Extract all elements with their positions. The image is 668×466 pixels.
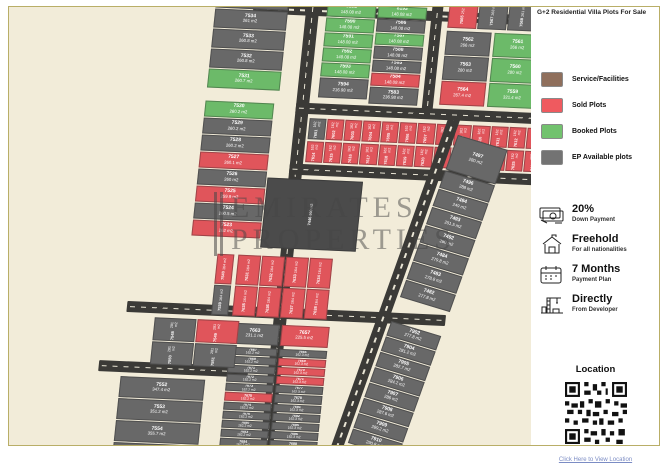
plot-tile: 7612162 m2 (508, 126, 527, 148)
plot-tile: 7534261 m2 (213, 8, 288, 30)
plot-tile: 8192148.08 m2 (326, 6, 376, 18)
plot-area: 355.7 m2 (147, 432, 165, 438)
plot-tile: 7634164 m2 (306, 257, 332, 288)
plot-tile: 7527260.1 m2 (198, 151, 268, 170)
plot-tile: 7602162 m2 (325, 118, 344, 140)
plot-tile: 7559321.4 m2 (486, 82, 531, 108)
plot-area: 164 m2 (222, 258, 227, 270)
plan-canvas: 7535261 m27534261 m27533260.8 m27532260.… (8, 6, 531, 446)
plot-area: 260.2 m2 (229, 110, 247, 116)
plot-area: 164 m2 (246, 259, 251, 271)
plot-tile: 7523262 m2 (191, 219, 261, 238)
plot-tile: 7563280 m2 (441, 55, 488, 81)
plot-area: 260 m2 (224, 178, 239, 184)
available-color-swatch (541, 150, 563, 165)
plot-tile: 7562266 m2 (444, 30, 491, 56)
plot-number: 7567 (489, 17, 495, 26)
plot-area: 148.08 m2 (391, 12, 412, 18)
plot-tile: 7533260.8 m2 (211, 28, 286, 50)
legend-label: Sold Plots (572, 102, 606, 109)
plot-tile: 7568261 m2 (507, 6, 531, 31)
plot-area: 162.3 m2 (294, 363, 308, 367)
feature-down-payment: 20% Down Payment (539, 204, 627, 225)
qr-code (565, 382, 627, 444)
plot-tile: 7553351.2 m2 (116, 398, 203, 423)
plot-number: 7619 (402, 156, 408, 165)
plot-area: 321.4 m2 (503, 95, 521, 101)
plot-tile: 7617162 m2 (359, 143, 378, 165)
legend-item-sold: Sold Plots (541, 98, 632, 113)
plot-area: 162 m2 (365, 144, 374, 153)
plot-area: 260.2 m2 (226, 144, 244, 150)
plot-area: 216.98 m2 (332, 88, 353, 94)
plot-tile: 7584148.08 m2 (370, 73, 420, 88)
plot-area: 148.08 m2 (334, 70, 355, 76)
plot-tile: 7615162 m2 (323, 141, 342, 163)
plot-area: 162 m2 (347, 143, 356, 152)
plot-number: 7540 (220, 271, 226, 280)
plot-area: 164 m2 (242, 290, 247, 302)
plot-area: 162 m2 (313, 119, 322, 128)
plot-number: 7603 (350, 131, 356, 140)
plot-tile: 7607162 m2 (416, 122, 435, 144)
plot-area: 162 m2 (386, 122, 395, 131)
plot-tile: 7590148.08 m2 (324, 17, 374, 33)
service-color-swatch (541, 72, 563, 87)
plot-tile: 7552347.4 m2 (118, 376, 205, 401)
plot-area: 162 m2 (404, 123, 413, 132)
plot-number: 7607 (423, 134, 429, 143)
plot-area: 162 m2 (420, 147, 429, 156)
feature-subtitle: Payment Plan (572, 277, 620, 283)
booked-color-swatch (541, 124, 563, 139)
plot-number: 7551 (211, 357, 217, 366)
plot-area: 266 m2 (510, 45, 525, 51)
page: { "header": {"title": "G+2 Residential V… (0, 0, 668, 452)
plot-area: 280 m2 (457, 68, 472, 74)
plot-area: 260.1 m2 (224, 161, 242, 167)
plot-area: 148.08 m2 (388, 39, 409, 45)
plot-tile: 7688162.3 m2 (269, 440, 318, 446)
plot-area: 162.3 m2 (291, 390, 305, 394)
plot-area: 162 m2 (329, 143, 338, 152)
plot-tile: 7525259.9 m2 (195, 185, 265, 204)
plot-tile: 7539164 m2 (211, 284, 231, 315)
feature-title: 20% (572, 204, 615, 215)
plot-area: 162.3 m2 (288, 427, 302, 431)
plot-tile: 7619162 m2 (396, 145, 415, 167)
plot-tile: 7603162 m2 (344, 119, 363, 141)
plot-area: 280 m2 (507, 70, 522, 76)
plot-tile: 7594216.98 m2 (317, 77, 368, 99)
plot-area: 281 m2 (213, 320, 222, 331)
calendar-icon (539, 264, 565, 285)
plot-area: 162.3 m2 (290, 399, 304, 403)
plot-area: 162 m2 (511, 151, 520, 160)
plot-number: 7631 (244, 272, 250, 281)
plot-area: 162 m2 (367, 121, 376, 130)
plot-tile: 7591148.08 m2 (323, 32, 373, 48)
plot-area: 236.98 m2 (382, 96, 403, 102)
plot-area: 162 m2 (459, 125, 468, 134)
plot-area: 162.2 m2 (239, 415, 253, 419)
plot-tile: 7528260.2 m2 (200, 134, 270, 153)
plot-area: 162.2 m2 (245, 351, 259, 355)
plot-number: 7637 (289, 305, 295, 314)
plot-tile: 7684162.2 m2 (219, 438, 268, 446)
plot-area: 281 m2 (210, 344, 219, 355)
feature-subtitle: Down Payment (572, 217, 615, 223)
plot-number: 7446 (308, 216, 314, 225)
plot-tile: 7593148.08 m2 (320, 62, 370, 78)
plot-area: 164 m2 (317, 262, 322, 274)
plot-area: 162 m2 (401, 146, 410, 155)
plot-tile: 7531260.7 m2 (206, 68, 281, 90)
plot-number: 7625 (512, 161, 518, 170)
plot-block-topmid-right: 8190341.98 m28193148.08 m27586148.08 m27… (367, 6, 429, 106)
feature-text: 7 Months Payment Plan (572, 264, 620, 283)
location-link[interactable]: Click Here to View Location (559, 457, 632, 463)
plot-tile: 7585148.08 m2 (371, 59, 421, 74)
plot-area: 260.8 m2 (236, 59, 254, 65)
plot-area: 351.2 m2 (150, 410, 168, 416)
plot-area: 148.08 m2 (385, 66, 406, 72)
plot-tile: 8193148.08 m2 (377, 6, 427, 20)
plot-area: 164 m2 (266, 291, 271, 303)
plot-tile: 7548281 m2 (152, 317, 196, 342)
plot-tile: 7554355.7 m2 (113, 420, 200, 445)
plot-tile: 7524260.5 m2 (193, 202, 263, 221)
plot-area: 164 m2 (218, 289, 223, 301)
plot-number: 7601 (314, 129, 320, 138)
plot-area: 260.7 m2 (234, 79, 252, 85)
plot-area: 162 m2 (331, 120, 340, 129)
plot-area: 162.2 m2 (244, 360, 258, 364)
plot-number: 7606 (405, 133, 411, 142)
plot-block-topright-left: 7562266 m27563280 m27564267.4 m2 (438, 30, 492, 107)
plot-tile: 7605162 m2 (380, 121, 399, 143)
plot-block-sold-grid: 7631164 m27632164 m27633164 m27634164 m2… (231, 254, 339, 320)
plot-area: 259.9 m2 (220, 195, 238, 201)
plot-area: 162.2 m2 (243, 379, 257, 383)
plot-block-bottomleft-column: 7552347.4 m27553351.2 m27554355.7 m27555… (110, 375, 205, 446)
feature-text: Directly From Developer (572, 294, 618, 313)
plot-tile: 7601162 m2 (307, 118, 326, 140)
plot-block-midlow-right: 7657225.5 m2 (279, 324, 330, 348)
plot-block-topright-row: 7565252 m27567263 m27568261 m2 (446, 6, 531, 32)
plot-tile: 7583236.98 m2 (368, 86, 419, 105)
feature-subtitle: For all nationalities (572, 247, 627, 253)
plot-area: 990 m2 (309, 203, 314, 215)
feature-freehold: Freehold For all nationalities (539, 234, 627, 255)
site-plan-map: 7535261 m27534261 m27533260.8 m27532260.… (8, 6, 531, 446)
plot-area: 266 m2 (460, 43, 475, 49)
plot-block-dense-right: 7666162.3 m27669162.3 m27670162.3 m27671… (267, 348, 327, 446)
plot-area: 148.08 m2 (340, 10, 361, 16)
plot-tile: 7637164 m2 (279, 287, 305, 318)
plot-number: 7620 (420, 157, 426, 166)
feature-title: Directly (572, 294, 618, 305)
plot-area: 162 m2 (422, 124, 431, 133)
crane-icon (539, 294, 565, 315)
location-title: Location (531, 364, 660, 375)
plot-number: 7539 (217, 302, 223, 311)
plot-tile: 7549281 m2 (195, 319, 239, 344)
plot-tile: 7587148.08 m2 (374, 32, 424, 47)
plot-number: 7550 (168, 355, 174, 364)
legend-label: EP Available plots (572, 154, 632, 161)
plot-area: 162.3 m2 (289, 408, 303, 412)
plot-area: 260.2 m2 (227, 127, 245, 133)
plot-area: 252 m2 (461, 6, 466, 14)
plot-number: 7612 (514, 138, 520, 147)
plot-area: 162 m2 (349, 120, 358, 129)
plot-tile: 7529260.2 m2 (202, 117, 272, 136)
plot-number: 7604 (368, 131, 374, 140)
plot-area: 148.08 m2 (337, 40, 358, 46)
feature-list: 20% Down Payment Freehold For all nation… (539, 204, 627, 324)
plot-tile: 7551281 m2 (192, 343, 236, 368)
plot-area: 347.4 m2 (152, 388, 170, 394)
plot-block-topright-right: 7561266 m27560280 m27559321.4 m2 (486, 32, 531, 109)
plot-tile: 7632164 m2 (259, 255, 285, 286)
plot-tile: 7567263 m2 (477, 6, 509, 30)
plot-tile: 7586148.08 m2 (375, 19, 425, 34)
plot-tile: 7657225.5 m2 (279, 324, 329, 347)
brochure-page: 7535261 m27534261 m27533260.8 m27532260.… (0, 0, 668, 452)
plot-area: 164 m2 (293, 261, 298, 273)
plot-block-bottomleft-grid: 7548281 m27549281 m27550281 m27551281 m2 (149, 316, 244, 368)
plot-area: 262 m2 (218, 229, 233, 235)
plot-area: 225.5 m2 (295, 336, 313, 342)
feature-title: 7 Months (572, 264, 620, 275)
plot-tile: 7606162 m2 (398, 122, 417, 144)
plot-tile: 7638164 m2 (303, 288, 329, 319)
plot-area: 267.4 m2 (453, 93, 471, 99)
legend: Service/Facilities Sold Plots Booked Plo… (541, 72, 632, 176)
plot-number: 7616 (348, 154, 354, 163)
plot-number: 7633 (292, 274, 298, 283)
plot-tile: 7636164 m2 (255, 286, 281, 317)
feature-subtitle: From Developer (572, 307, 618, 313)
plot-number: 7549 (213, 333, 219, 342)
legend-label: Service/Facilities (572, 76, 629, 83)
plot-number: 7632 (268, 273, 274, 282)
plot-area: 162.3 m2 (286, 445, 300, 446)
feature-developer: Directly From Developer (539, 294, 627, 315)
house-icon (539, 234, 565, 255)
plot-area: 260.8 m2 (239, 39, 257, 45)
plot-area: 148.08 m2 (390, 26, 411, 32)
plot-area: 148.08 m2 (387, 53, 408, 59)
plot-area: 162 m2 (495, 127, 504, 137)
plot-area: 162.3 m2 (287, 436, 301, 440)
plot-tile: 7561266 m2 (492, 32, 531, 58)
feature-text: Freehold For all nationalities (572, 234, 627, 253)
plot-number: 7636 (265, 304, 271, 313)
plot-tile: 7564267.4 m2 (439, 80, 486, 106)
plot-area: 148.08 m2 (336, 55, 357, 61)
plot-area: 162.2 m2 (244, 370, 258, 374)
plot-tile: 7446990 m2 (260, 177, 363, 251)
plot-area: 162.3 m2 (295, 353, 309, 357)
plot-tile: 7633164 m2 (283, 256, 309, 287)
plot-area: 162.2 m2 (236, 443, 250, 446)
legend-item-booked: Booked Plots (541, 124, 632, 139)
plot-tile: 7565252 m2 (447, 6, 479, 28)
plot-area: 162.3 m2 (288, 418, 302, 422)
plot-area: 231.1 m2 (245, 334, 263, 340)
feature-payment-plan: 7 Months Payment Plan (539, 264, 627, 285)
plot-tile: 7616162 m2 (341, 142, 360, 164)
plot-tile: 7626162 m2 (523, 150, 531, 172)
plot-area: 164 m2 (314, 293, 319, 305)
plot-block-service-large: 7446990 m2 (259, 177, 362, 251)
plot-tile: 7635164 m2 (232, 285, 258, 316)
plot-area: 164 m2 (270, 260, 275, 272)
plot-area: 281 m2 (167, 342, 176, 353)
plot-area: 162.3 m2 (293, 372, 307, 376)
plot-number: 7602 (332, 130, 338, 139)
plot-area: 162.2 m2 (241, 397, 255, 401)
plot-area: 148.08 m2 (384, 80, 405, 86)
plot-number: 7638 (313, 306, 319, 315)
plot-tile: 7618162 m2 (378, 144, 397, 166)
plot-tile: 7631164 m2 (235, 254, 261, 285)
plot-number: 7617 (366, 154, 372, 163)
legend-label: Booked Plots (572, 128, 617, 135)
legend-item-service: Service/Facilities (541, 72, 632, 87)
plot-area: 162 m2 (383, 145, 392, 154)
legend-item-available: EP Available plots (541, 150, 632, 165)
plot-number: 7614 (311, 152, 317, 161)
feature-title: Freehold (572, 234, 627, 245)
plot-area: 162.2 m2 (237, 434, 251, 438)
plot-tile: 7592148.08 m2 (321, 47, 371, 63)
page-title: G+2 Residential Villa Plots For Sale (531, 6, 660, 16)
plot-number: 7548 (171, 331, 177, 340)
location-section: Location (531, 364, 660, 466)
plot-area: 162 m2 (513, 128, 522, 137)
plot-tile: 7526260 m2 (196, 168, 266, 187)
plot-tile: 7532260.8 m2 (209, 48, 284, 70)
plot-number: 7634 (316, 275, 322, 284)
feature-text: 20% Down Payment (572, 204, 615, 223)
banknote-icon (539, 204, 565, 225)
plot-area: 162 m2 (477, 126, 486, 135)
plot-number: 7565 (459, 15, 465, 24)
plot-number: 7615 (329, 153, 335, 162)
plot-area: 260.5 m2 (218, 212, 236, 218)
plot-tile: 7588148.08 m2 (373, 46, 423, 61)
plot-area: 162 m2 (310, 142, 319, 151)
plot-tile: 7530260.2 m2 (203, 100, 273, 119)
sold-color-swatch (541, 98, 563, 113)
plot-tile: 7604162 m2 (362, 120, 381, 142)
plot-number: 7605 (386, 132, 392, 141)
plot-tile: 7614162 m2 (305, 141, 324, 163)
plot-number: 7635 (241, 303, 247, 312)
plot-number: 7568 (519, 18, 525, 27)
plot-tile: 7550281 m2 (149, 341, 193, 366)
plot-area: 162.3 m2 (292, 381, 306, 385)
plot-area: 263 m2 (490, 6, 495, 16)
plot-tile: 7540164 m2 (214, 253, 234, 284)
plot-area: 162.2 m2 (242, 388, 256, 392)
plot-area: 162.2 m2 (238, 425, 252, 429)
plot-area: 261 m2 (242, 19, 257, 25)
plot-tile: 7560280 m2 (489, 57, 531, 83)
plot-tile: 7625162 m2 (505, 149, 524, 171)
plot-area: 261 m2 (520, 6, 525, 17)
plot-area: 164 m2 (290, 292, 295, 304)
sidebar: G+2 Residential Villa Plots For Sale Ser… (531, 6, 660, 446)
plot-area: 148.08 m2 (339, 25, 360, 31)
plot-area: 281 m2 (170, 318, 179, 329)
plot-area: 162.2 m2 (240, 406, 254, 410)
plot-block-left-upper: 7535261 m27534261 m27533260.8 m27532260.… (206, 6, 290, 91)
plot-number: 7618 (384, 155, 390, 164)
